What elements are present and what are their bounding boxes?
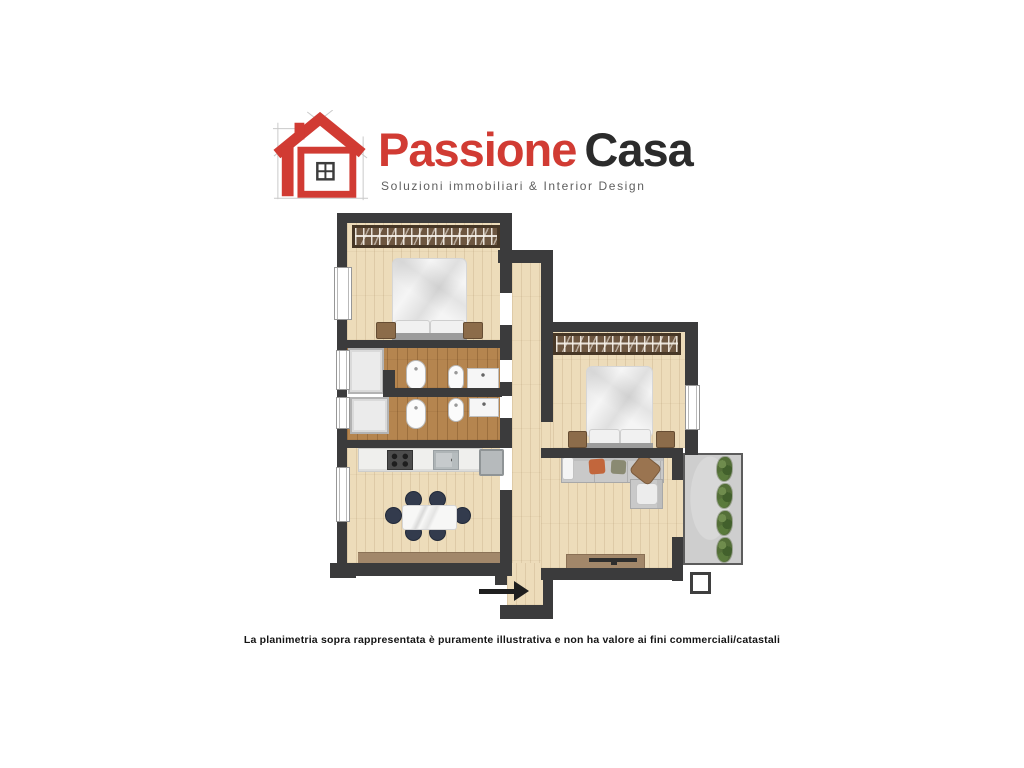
wall <box>500 605 553 619</box>
nightstand <box>376 322 396 339</box>
plant <box>717 538 732 562</box>
wall <box>543 580 553 608</box>
brand-primary: Passione <box>378 123 576 176</box>
window-shape <box>316 162 335 181</box>
dining-table <box>402 505 457 530</box>
toilet-bathroom-1 <box>406 360 426 390</box>
bed-bedroom-2 <box>586 366 653 450</box>
window <box>334 267 352 320</box>
arrow-head <box>514 581 529 601</box>
window <box>685 385 700 430</box>
kitchen-sink <box>433 450 459 470</box>
brand-name: PassioneCasa <box>378 124 693 176</box>
sofa <box>561 455 662 507</box>
floor-plan <box>330 210 746 624</box>
shower-tray-bathroom-2 <box>350 397 389 434</box>
brand-secondary: Casa <box>584 123 692 176</box>
wall <box>541 322 698 332</box>
hallway-floor <box>512 263 541 605</box>
house-logo-icon <box>272 110 370 208</box>
wardrobe-bedroom-2 <box>553 333 681 355</box>
plant <box>717 457 732 481</box>
wall <box>337 340 512 348</box>
wall <box>495 563 507 585</box>
wall <box>337 563 512 576</box>
toilet-bathroom-2 <box>406 399 426 429</box>
wall <box>383 388 502 397</box>
wall <box>541 252 553 422</box>
wall <box>672 448 683 480</box>
side-table <box>562 457 574 480</box>
arrow-shaft <box>479 589 515 594</box>
dining-chair <box>385 507 402 524</box>
shower-tray-bathroom-1 <box>348 348 384 394</box>
wardrobe-bedroom-1 <box>352 225 500 248</box>
wall <box>541 448 683 458</box>
wall <box>500 325 512 360</box>
plant <box>717 484 732 508</box>
wall <box>541 568 683 580</box>
agency-logo: PassioneCasa Soluzioni immobiliari & Int… <box>272 108 752 212</box>
cushion-green <box>611 460 627 475</box>
exterior-unit <box>690 572 711 594</box>
nightstand <box>656 431 675 448</box>
logo-text-block: PassioneCasa Soluzioni immobiliari & Int… <box>378 124 693 193</box>
tv-stand <box>611 562 617 565</box>
brand-tagline: Soluzioni immobiliari & Interior Design <box>378 179 693 193</box>
sink-bathroom-2 <box>469 398 499 417</box>
wall <box>337 213 512 223</box>
bidet-bathroom-2 <box>448 398 464 422</box>
bedroom-2-doorway-floor <box>541 422 553 450</box>
bed-bedroom-1 <box>392 258 467 341</box>
wall <box>337 440 512 448</box>
wall <box>500 490 512 563</box>
balcony-floor <box>683 453 743 565</box>
window <box>336 467 350 522</box>
nightstand <box>568 431 587 448</box>
wall <box>383 370 395 388</box>
cushion-orange <box>588 458 605 474</box>
disclaimer-text: La planimetria sopra rappresentata è pur… <box>0 634 1024 646</box>
chaise-cushion <box>636 483 658 505</box>
nightstand <box>463 322 483 339</box>
sink-bathroom-1 <box>467 368 499 390</box>
left-wall-shape <box>282 146 294 196</box>
window <box>336 397 350 429</box>
chimney-shape <box>295 123 305 140</box>
window <box>336 350 350 390</box>
plant <box>717 511 732 535</box>
refrigerator <box>479 449 504 476</box>
kitchen-counter <box>358 448 482 472</box>
duvet <box>392 258 467 328</box>
stove-cooktop <box>387 450 413 470</box>
duvet <box>586 366 653 438</box>
